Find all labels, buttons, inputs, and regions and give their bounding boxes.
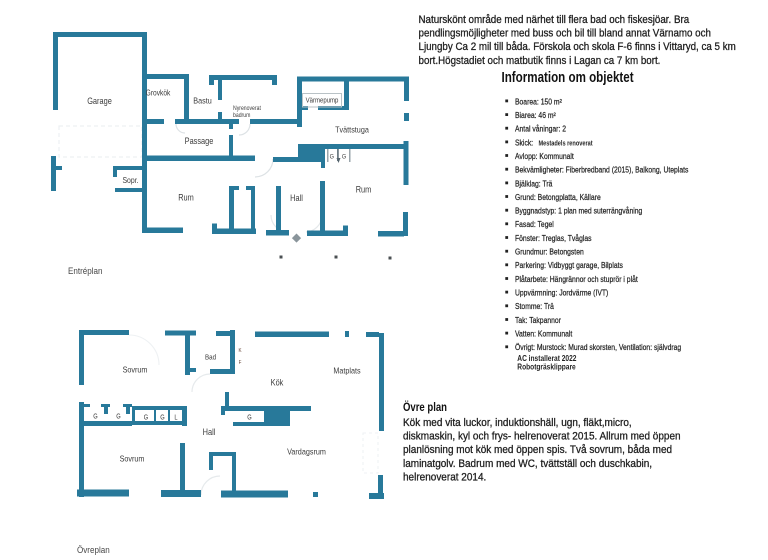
svg-text:Grundmur: Betongsten: Grundmur: Betongsten [515,247,584,257]
svg-text:Kök med vita luckor, induktion: Kök med vita luckor, induktionshäll, ugn… [403,416,632,429]
svg-text:Tak: Takpannor: Tak: Takpannor [515,315,561,325]
svg-text:Fasad: Tegel: Fasad: Tegel [515,220,554,230]
svg-text:Passage: Passage [185,136,214,146]
svg-text:planlösning mot kök med öppen: planlösning mot kök med öppen spis. Två … [403,444,672,457]
svg-text:K: K [238,348,242,355]
svg-text:G: G [330,153,334,161]
svg-text:pendlingsmöjligheter med buss: pendlingsmöjligheter med buss och bil ti… [419,27,712,40]
svg-text:Bastu: Bastu [193,96,211,106]
svg-text:Grund: Betongplatta, Källare: Grund: Betongplatta, Källare [515,192,601,202]
svg-text:F: F [239,360,242,367]
svg-text:Skick:: Skick: [515,138,533,148]
svg-text:G: G [144,414,148,422]
svg-text:Bekvämligheter: Fiberbredband: Bekvämligheter: Fiberbredband (2015), Ba… [515,165,689,175]
svg-text:Parkering: Vidbyggt garage, Bi: Parkering: Vidbyggt garage, Bilplats [515,261,623,271]
svg-text:bort.Högstadiet och matbutik f: bort.Högstadiet och matbutik finns i Lag… [419,54,661,67]
svg-text:laminatgolv. Badrum med WC, tv: laminatgolv. Badrum med WC, tvättställ o… [403,457,652,470]
svg-text:helrenoverat 2014.: helrenoverat 2014. [403,471,486,484]
svg-text:Rum: Rum [356,185,372,195]
svg-text:G: G [160,414,164,422]
svg-text:Mestadels renoverat: Mestadels renoverat [539,140,594,148]
svg-text:diskmaskin, kyl och frys- helr: diskmaskin, kyl och frys- helrenoverat 2… [403,430,681,443]
svg-text:Rum: Rum [178,193,194,203]
svg-text:Biarea: 46 m²: Biarea: 46 m² [515,110,556,120]
svg-text:Matplats: Matplats [333,366,360,376]
svg-text:Uppvärmning: Jordvärme (IVT): Uppvärmning: Jordvärme (IVT) [515,288,609,298]
svg-text:Avlopp: Kommunalt: Avlopp: Kommunalt [515,151,575,161]
svg-text:Övrigt: Murstock: Murad skorst: Övrigt: Murstock: Murad skorsten, Ventil… [515,343,681,353]
svg-text:Hall: Hall [290,193,303,203]
svg-text:Byggnadstyp: 1 plan med suterr: Byggnadstyp: 1 plan med suterrängvåning [515,206,642,216]
svg-text:Övre plan: Övre plan [403,400,447,415]
svg-text:G: G [116,413,120,421]
svg-text:Vatten: Kommunalt: Vatten: Kommunalt [515,329,573,339]
svg-text:badrum: badrum [233,113,251,119]
svg-text:Naturskönt område med närhet t: Naturskönt område med närhet till flera … [419,13,690,26]
svg-text:G: G [247,414,251,422]
svg-text:Övreplan: Övreplan [77,544,110,555]
svg-text:Sovrum: Sovrum [123,365,148,375]
svg-text:Entréplan: Entréplan [68,265,103,276]
svg-text:Bad: Bad [205,354,216,362]
svg-text:Robotgräsklippare: Robotgräsklippare [517,362,575,372]
svg-text:Kök: Kök [271,378,285,388]
svg-text:Nyrenoverat: Nyrenoverat [233,106,261,112]
svg-text:Sovrum: Sovrum [120,454,145,464]
svg-text:Garage: Garage [87,96,112,106]
svg-text:Hall: Hall [203,427,216,437]
svg-text:Boarea: 150 m²: Boarea: 150 m² [515,97,562,107]
svg-text:Stomme: Trä: Stomme: Trä [515,302,555,312]
svg-text:Vardagsrum: Vardagsrum [287,447,326,457]
svg-text:G: G [342,153,346,161]
svg-text:Bjälklag: Trä: Bjälklag: Trä [515,179,553,189]
svg-text:G: G [93,413,97,421]
svg-text:Antal våningar: 2: Antal våningar: 2 [515,124,566,134]
svg-text:Plåtarbete: Hängrännor och stu: Plåtarbete: Hängrännor och stuprör i plå… [515,274,639,284]
svg-text:Grovkök: Grovkök [146,88,171,98]
svg-text:Ljungby Ca 2 mil till båda. Fö: Ljungby Ca 2 mil till båda. Förskola och… [419,41,736,54]
svg-text:Sopr.: Sopr. [122,175,138,185]
svg-text:Information om objektet: Information om objektet [502,69,635,86]
svg-text:Fönster: Treglas, Tvåglas: Fönster: Treglas, Tvåglas [515,233,592,243]
svg-text:L: L [174,414,178,422]
svg-text:Värmepump: Värmepump [306,97,339,105]
svg-text:Tvättstuga: Tvättstuga [335,125,369,135]
